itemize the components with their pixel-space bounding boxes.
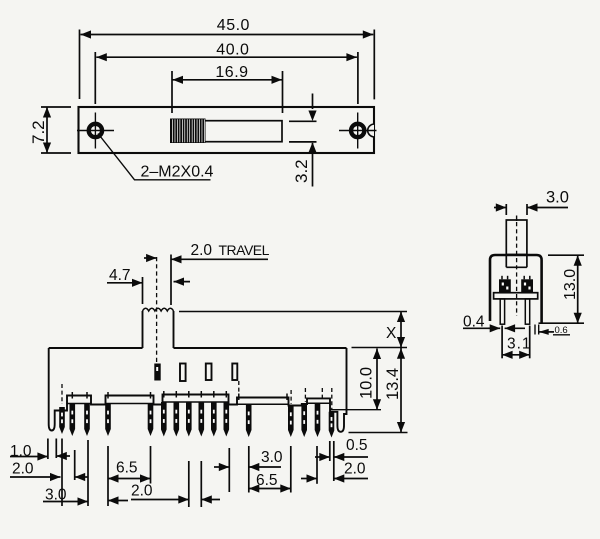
svg-text:3.0: 3.0 [261,449,283,466]
svg-text:2.0: 2.0 [131,483,153,500]
svg-text:6.5: 6.5 [116,460,138,477]
svg-text:13.4: 13.4 [384,368,402,400]
svg-text:13.0: 13.0 [562,269,579,300]
svg-text:3.2: 3.2 [292,159,311,183]
svg-text:4.7: 4.7 [109,267,131,284]
svg-text:3.0: 3.0 [546,189,569,207]
svg-text:X: X [386,325,397,342]
svg-text:16.9: 16.9 [215,64,248,81]
svg-text:3.1: 3.1 [507,336,532,353]
svg-text:0.6: 0.6 [555,325,568,336]
svg-text:2–M2X0.4: 2–M2X0.4 [141,164,214,181]
svg-text:10.0: 10.0 [358,367,376,399]
svg-text:2.0: 2.0 [344,461,366,478]
svg-text:0.5: 0.5 [346,437,368,454]
svg-text:40.0: 40.0 [216,42,249,59]
svg-text:45.0: 45.0 [217,17,250,34]
svg-text:TRAVEL: TRAVEL [219,242,270,258]
svg-text:2.0: 2.0 [191,242,213,259]
svg-text:7.2: 7.2 [29,120,48,144]
svg-text:1.0: 1.0 [10,443,32,460]
svg-text:2.0: 2.0 [12,461,34,478]
